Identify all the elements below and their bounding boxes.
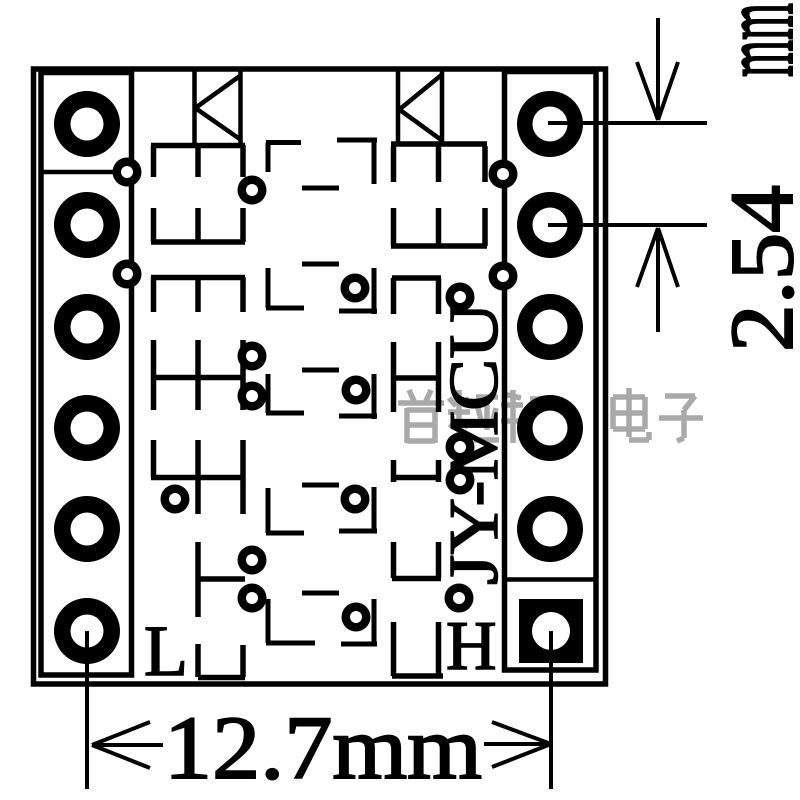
svg-text:L: L (144, 611, 188, 691)
svg-text:12.7mm: 12.7mm (164, 699, 482, 798)
svg-text:mm: mm (698, 3, 800, 77)
svg-text:2.54: 2.54 (713, 185, 800, 352)
svg-text:JY-MCU: JY-MCU (436, 302, 513, 585)
svg-text:H: H (446, 608, 497, 685)
